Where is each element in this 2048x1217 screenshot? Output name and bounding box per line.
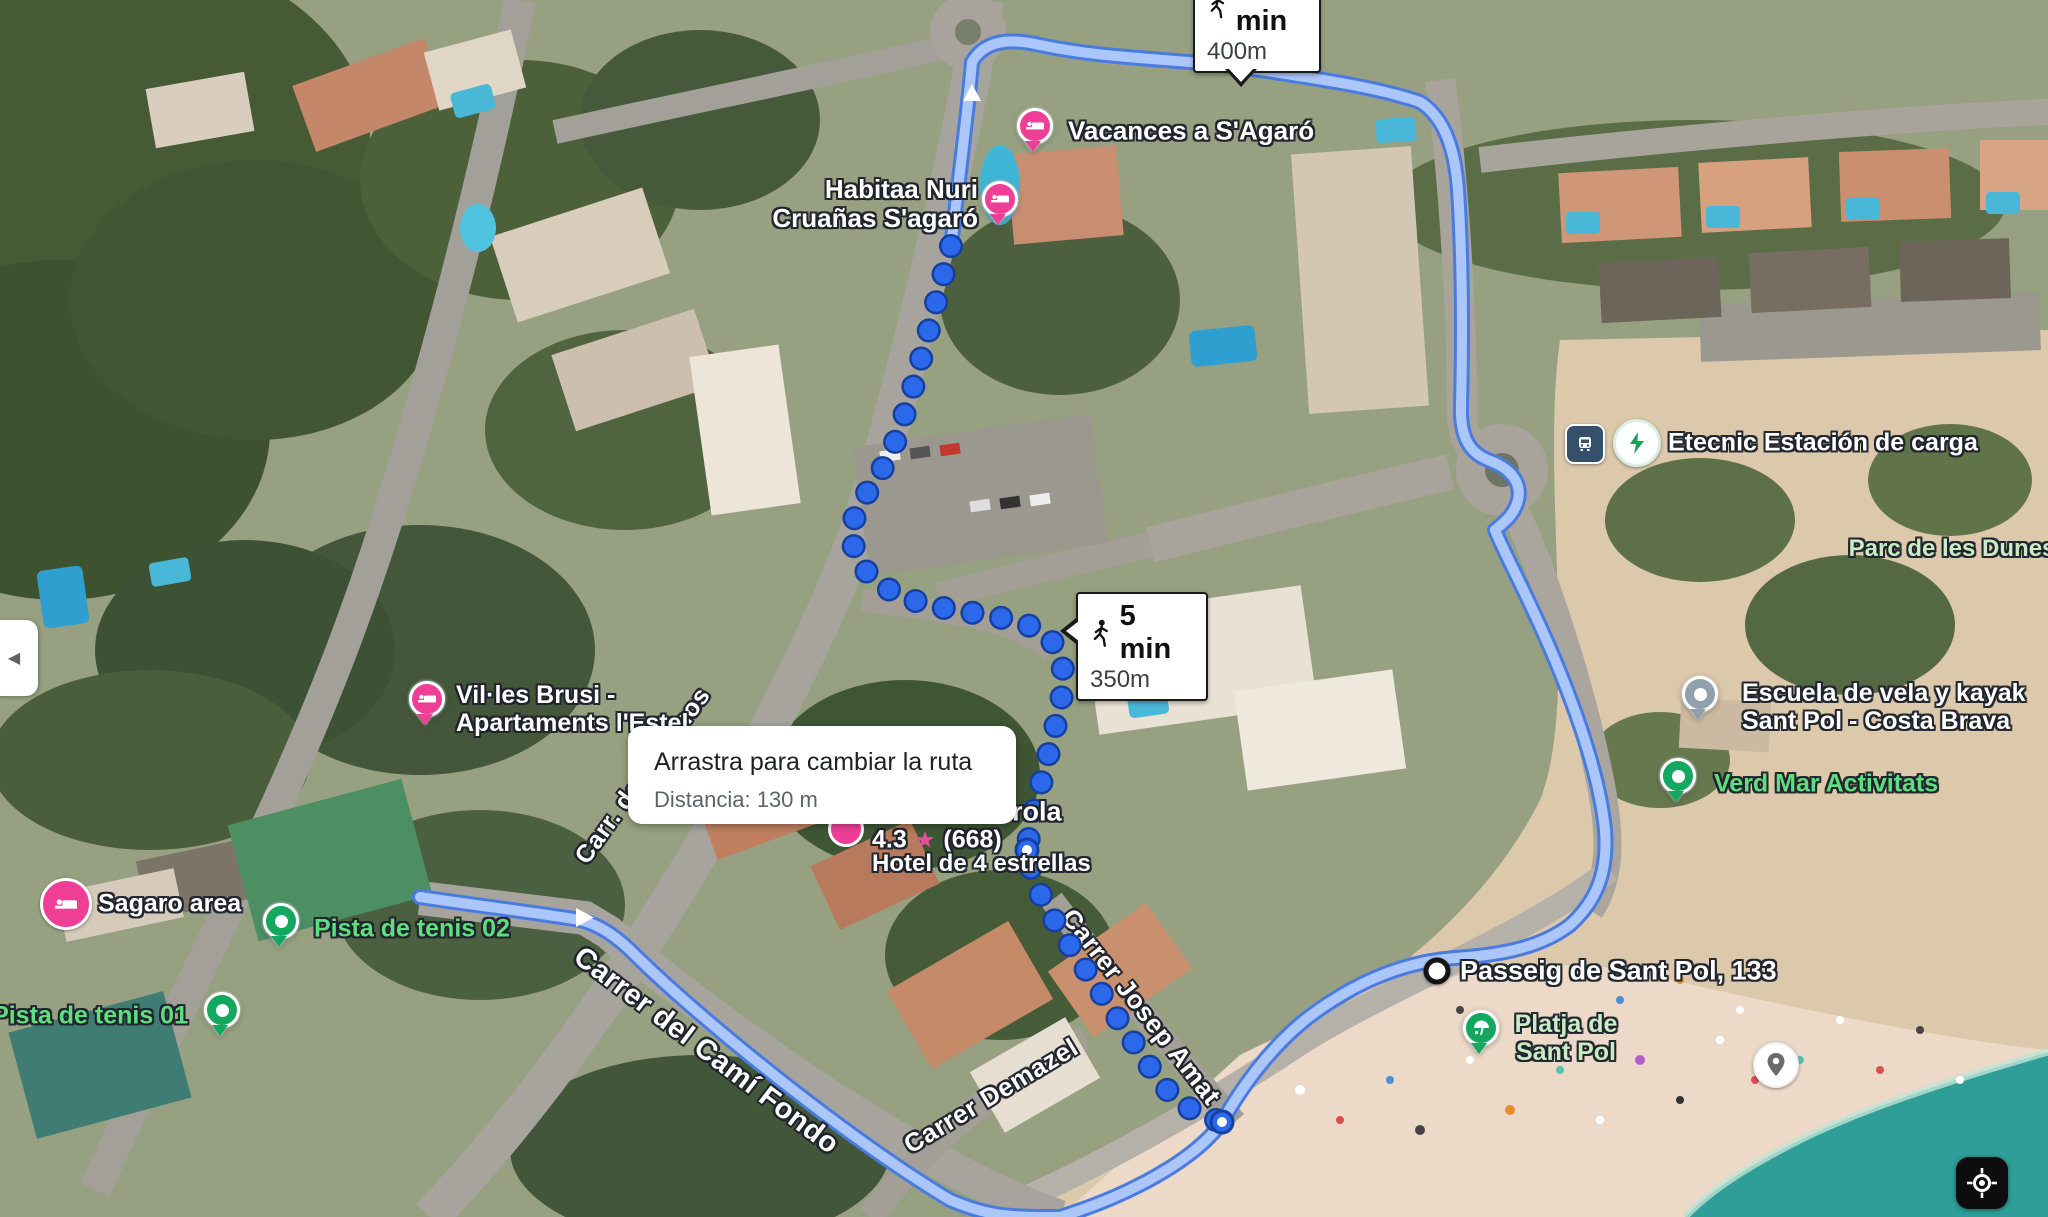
bed-icon — [418, 693, 436, 705]
ev-charging-icon[interactable] — [1613, 419, 1661, 467]
bed-icon — [991, 193, 1009, 205]
walking-person-icon — [1207, 0, 1228, 19]
drag-route-tooltip: Arrastra para cambiar la ruta Distancia:… — [628, 726, 1016, 824]
poi-pin-escuela[interactable] — [1680, 676, 1720, 726]
poi-pin-verd-mar[interactable] — [1658, 758, 1698, 808]
poi-label-escuela-line1: Escuela de vela y kayak — [1742, 679, 2026, 707]
beach-umbrella-icon — [1472, 1019, 1490, 1037]
poi-icon-sagaro[interactable] — [40, 878, 92, 930]
generic-location-pin-icon[interactable] — [1753, 1042, 1799, 1088]
bus-icon — [1576, 435, 1594, 453]
poi-label-vacances[interactable]: Vacances a S'Agaró — [1068, 116, 1314, 147]
poi-label-habitaa[interactable]: Habitaa Nuri Cruañas S'agaró — [772, 175, 978, 233]
crosshair-icon — [1967, 1168, 1997, 1198]
walking-dotted-path[interactable] — [0, 0, 2048, 1217]
hotel-pin-vacances[interactable] — [1015, 108, 1055, 158]
walking-person-icon — [1090, 619, 1112, 647]
drag-route-tooltip-distance: Distancia: 130 m — [654, 787, 1016, 813]
route-distance-top: 400m — [1207, 38, 1307, 66]
poi-label-etecnic[interactable]: Etecnic Estación de carga — [1668, 429, 1978, 458]
left-chevron-icon: ◀ — [8, 648, 20, 668]
poi-label-verd-mar[interactable]: Verd Mar Activitats — [1714, 770, 1938, 799]
bed-icon — [1026, 120, 1044, 132]
destination-marker[interactable] — [1424, 958, 1451, 985]
poi-label-platja-line2: Sant Pol — [1515, 1038, 1618, 1066]
lightning-bolt-icon — [1627, 432, 1647, 454]
hotel-category: Hotel de 4 estrellas — [872, 850, 1091, 878]
poi-label-platja-line1: Platja de — [1515, 1010, 1618, 1038]
poi-label-tenis01[interactable]: Pista de tenis 01 — [0, 1002, 188, 1031]
badge-pointer-fill — [1066, 621, 1079, 641]
poi-label-tenis02[interactable]: Pista de tenis 02 — [314, 915, 510, 944]
route-time-badge-top[interactable]: 6 min 400m — [1193, 0, 1321, 73]
poi-label-villes-line1: Vil·les Brusi - — [456, 681, 688, 709]
route-waypoint-dot[interactable] — [1016, 839, 1233, 1133]
poi-label-habitaa-line2: Cruañas S'agaró — [772, 204, 978, 233]
my-location-button[interactable] — [1956, 1157, 2008, 1209]
hotel-pin-habitaa[interactable] — [980, 181, 1020, 231]
hotel-name-fragment[interactable]: rola — [1012, 797, 1062, 828]
transit-stop-icon[interactable] — [1565, 424, 1605, 464]
map-canvas[interactable]: Carrer Verbania Carrer Verbania Av. L Av… — [0, 0, 2048, 1217]
bed-icon — [55, 897, 77, 912]
poi-label-sagaro[interactable]: Sagaro area — [98, 890, 241, 919]
hotel-pin-villes-brusi[interactable] — [407, 681, 447, 731]
poi-label-parc-dunes[interactable]: Parc de les Dunes — [1849, 535, 2048, 563]
badge-pointer-fill — [1228, 68, 1254, 82]
collapse-side-panel-button[interactable]: ◀ — [0, 620, 38, 696]
drag-route-tooltip-title: Arrastra para cambiar la ruta — [654, 748, 1016, 777]
poi-label-platja[interactable]: Platja de Sant Pol — [1515, 1010, 1618, 1066]
poi-label-habitaa-line1: Habitaa Nuri — [772, 175, 978, 204]
poi-pin-platja[interactable] — [1461, 1010, 1501, 1060]
route-time-top: 6 min — [1236, 0, 1307, 38]
map-pin-icon — [1767, 1053, 1785, 1077]
route-distance-walk: 350m — [1090, 666, 1194, 694]
poi-label-escuela[interactable]: Escuela de vela y kayak Sant Pol - Costa… — [1742, 679, 2026, 735]
poi-pin-tenis01[interactable] — [202, 992, 242, 1042]
destination-label[interactable]: Passeig de Sant Pol, 133 — [1460, 956, 1777, 987]
route-time-walk: 5 min — [1120, 600, 1194, 666]
poi-label-escuela-line2: Sant Pol - Costa Brava — [1742, 707, 2026, 735]
poi-pin-tenis02[interactable] — [261, 903, 301, 953]
route-time-badge-walk[interactable]: 5 min 350m — [1076, 592, 1208, 701]
